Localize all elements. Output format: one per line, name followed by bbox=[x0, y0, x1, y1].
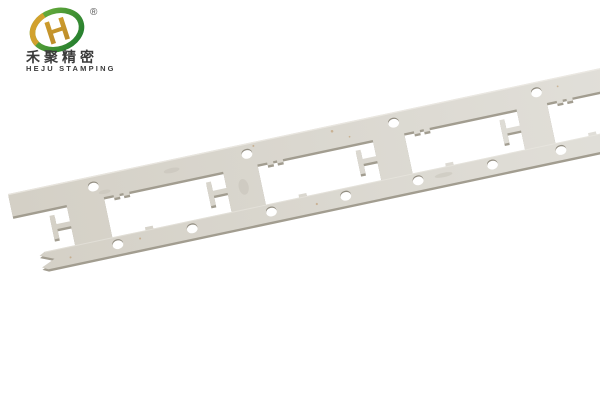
company-logo: H ® 禾聚精密 HEJU STAMPING bbox=[0, 0, 130, 90]
logo-emblem-icon: H ® bbox=[0, 0, 120, 90]
company-name-english: HEJU STAMPING bbox=[26, 64, 116, 73]
registered-trademark-symbol: ® bbox=[90, 7, 98, 18]
product-photo-page: H ® 禾聚精密 HEJU STAMPING bbox=[0, 0, 600, 400]
